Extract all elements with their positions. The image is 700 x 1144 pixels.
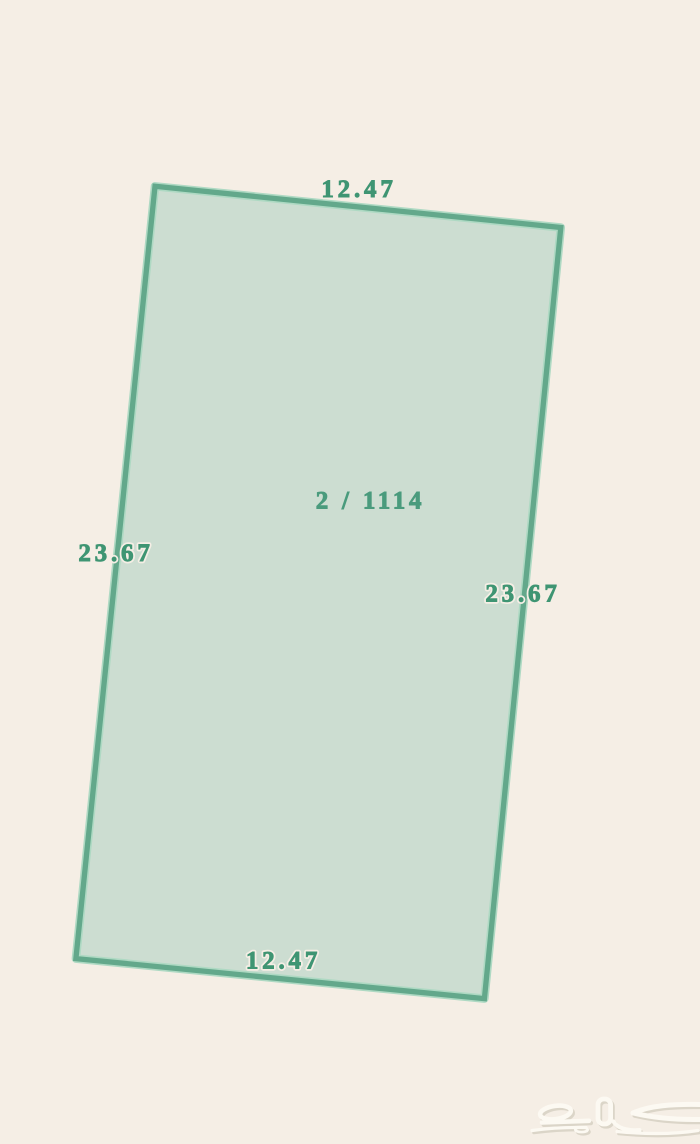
- svg-text:12.47: 12.47: [246, 948, 321, 975]
- svg-text:23.67: 23.67: [78, 540, 153, 567]
- svg-text:23.67: 23.67: [485, 581, 560, 608]
- svg-text:12.47: 12.47: [321, 176, 396, 203]
- svg-text:2 / 1114: 2 / 1114: [316, 488, 426, 515]
